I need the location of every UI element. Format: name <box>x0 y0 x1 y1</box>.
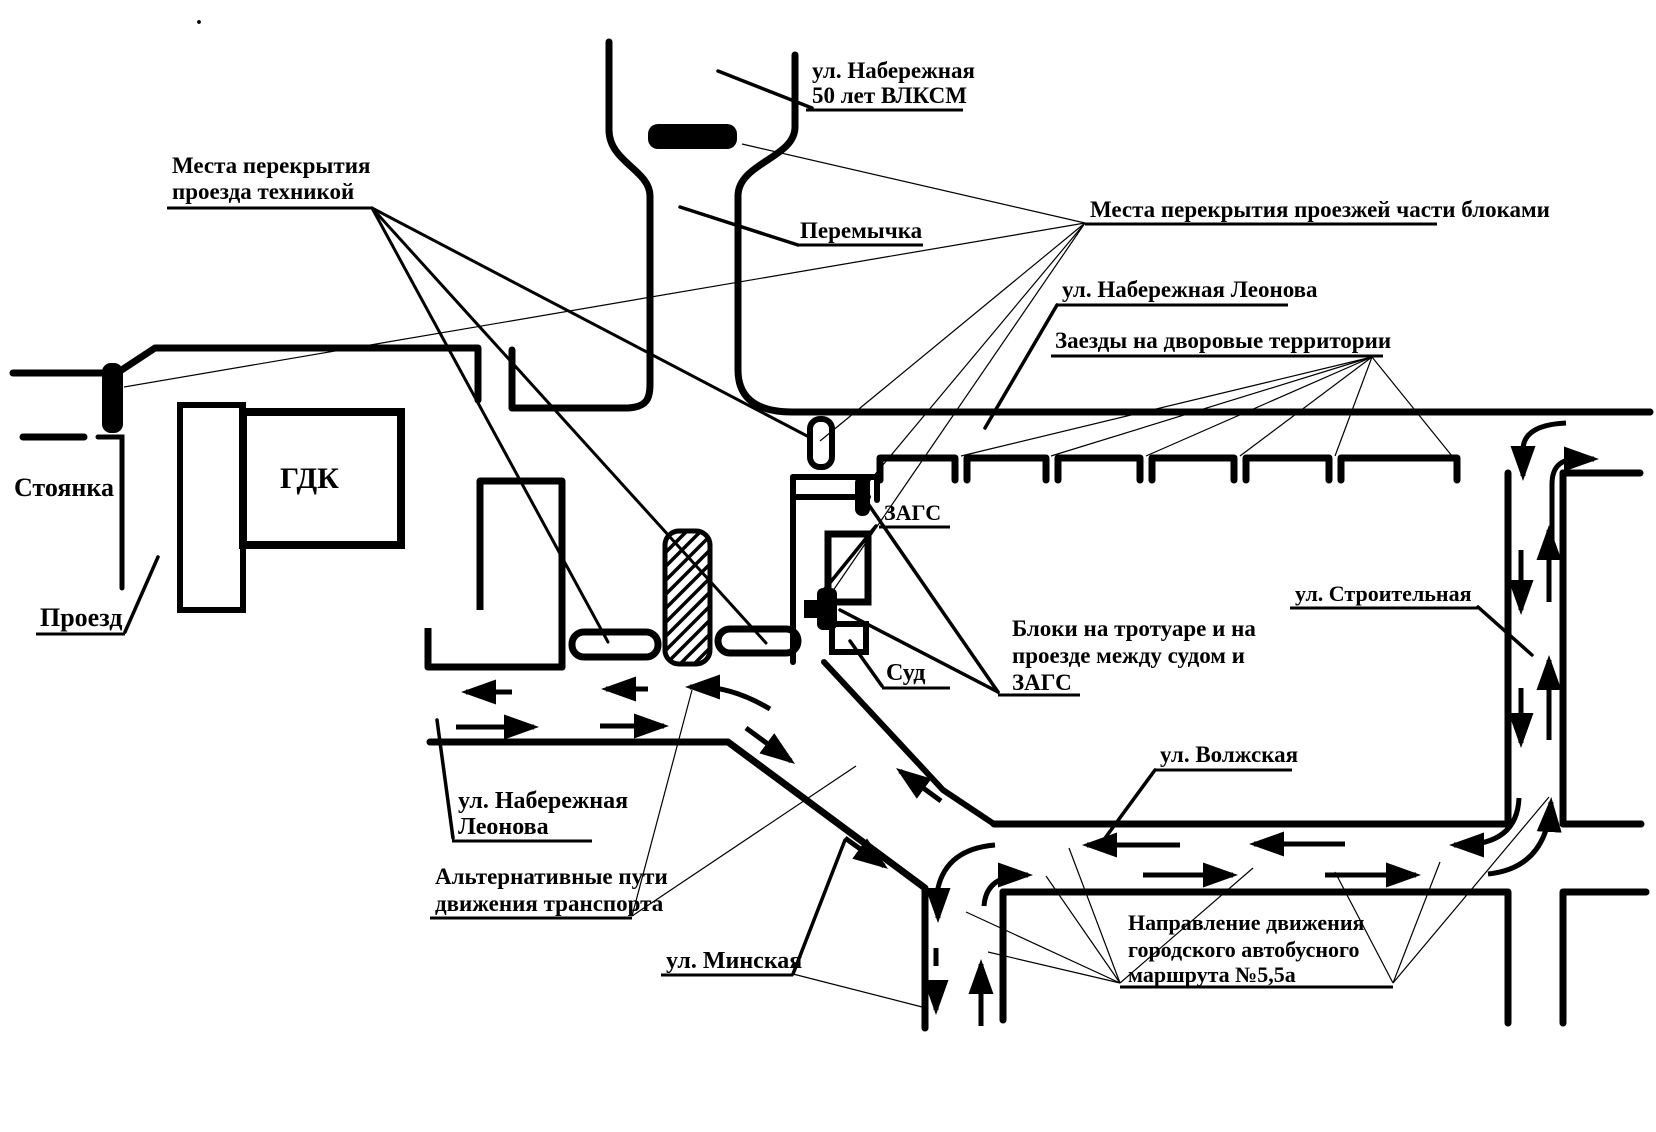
label-bus-line1: Направление движения <box>1128 910 1365 935</box>
label-blokami: Места перекрытия проезжей части блоками <box>1090 197 1550 222</box>
parking-boundary <box>98 437 122 588</box>
fan-tekhnikoy <box>372 208 809 437</box>
scheme-canvas: . ул. Набережная 50 лет ВЛКСМ Перемычка … <box>0 0 1656 1132</box>
label-bloki-line1: Блоки на тротуаре и на <box>1012 616 1256 641</box>
label-peremychka: Перемычка <box>800 218 923 243</box>
fan-blokami <box>124 223 1085 387</box>
label-tekhnikoy-line2: проезда техникой <box>172 179 354 204</box>
block-left-road-filled <box>102 363 123 433</box>
gdk-building-annex <box>180 405 243 610</box>
leader-minskaya-thin <box>793 974 926 1008</box>
label-zaezdy: Заезды на дворовые территории <box>1055 328 1391 353</box>
fan-bus-route <box>988 952 1120 983</box>
label-stoyanka: Стоянка <box>14 473 114 502</box>
label-zags: ЗАГС <box>884 500 941 525</box>
arrow-northwest-diagonal <box>900 771 941 801</box>
label-proezd: Проезд <box>40 603 122 632</box>
fan-tekhnikoy <box>372 208 608 642</box>
arrow-turn-south-into-minskaya <box>938 845 995 918</box>
driveway-brackets <box>880 458 1457 480</box>
leader-volzhskaya <box>1100 770 1155 845</box>
block-between-sud-zags-stub <box>804 600 818 618</box>
label-bus-line2: городского автобусного <box>1128 937 1359 962</box>
label-bloki-line2: проезде между судом и <box>1012 643 1245 668</box>
fan-zaezdy <box>1051 357 1372 456</box>
label-leonova-left-line1: ул. Набережная <box>458 788 628 814</box>
label-stroitelnaya: ул. Строительная <box>1295 581 1472 606</box>
label-volzhskaya: ул. Волжская <box>1160 742 1298 767</box>
sud-building <box>832 624 866 652</box>
road-block-south-connector <box>824 662 994 824</box>
block-outline-small-vertical <box>810 419 832 467</box>
label-alt-line1: Альтернативные пути <box>435 864 668 889</box>
fan-zaezdy <box>1335 357 1372 456</box>
label-bus-line3: маршрута №5,5а <box>1128 962 1296 987</box>
driveway-bracket <box>967 458 1046 480</box>
road-funnel-left-edge <box>512 42 650 408</box>
stray-dot: . <box>196 4 202 30</box>
label-bloki-line3: ЗАГС <box>1012 670 1072 695</box>
fan-blokami <box>742 144 1085 223</box>
leader-leonova-left <box>437 720 453 838</box>
label-sud: Суд <box>886 660 925 686</box>
block-peremychka-filled <box>648 124 737 149</box>
driveway-bracket <box>1341 458 1457 480</box>
label-tekhnikoy-line1: Места перекрытия <box>172 153 370 178</box>
fan-zaezdy <box>961 357 1372 456</box>
block-outline-west <box>572 632 658 657</box>
blockade-markers <box>102 124 870 664</box>
driveway-bracket <box>1246 458 1329 480</box>
label-gdk: ГДК <box>280 462 339 495</box>
hatched-equipment-block <box>665 531 710 664</box>
arrow-turn-west-from-diagonal <box>690 687 770 709</box>
driveway-bracket <box>1058 458 1140 480</box>
label-leonova-top: ул. Набережная Леонова <box>1062 277 1318 302</box>
middle-building <box>428 481 562 667</box>
label-alt-line2: движения транспорта <box>435 891 664 916</box>
traffic-arrows <box>456 423 1594 1026</box>
label-vlksm-line2: 50 лет ВЛКСМ <box>812 83 967 108</box>
fan-tekhnikoy <box>372 208 766 643</box>
driveway-bracket <box>880 458 955 480</box>
label-minskaya: ул. Минская <box>666 948 802 974</box>
traffic-scheme-diagram: . ул. Набережная 50 лет ВЛКСМ Перемычка … <box>0 0 1656 1132</box>
arrow-turn-south-into-stroitelnaya <box>1523 423 1566 476</box>
label-vlksm-line1: ул. Набережная <box>812 58 975 83</box>
leader-proezd <box>125 557 158 632</box>
label-leonova-left-line2: Леонова <box>458 814 549 840</box>
fan-zaezdy <box>1372 357 1452 456</box>
fan-blokami <box>820 223 1085 441</box>
driveway-bracket <box>1152 458 1234 480</box>
road-left-west <box>13 348 478 400</box>
fan-bus-route <box>1393 862 1440 983</box>
